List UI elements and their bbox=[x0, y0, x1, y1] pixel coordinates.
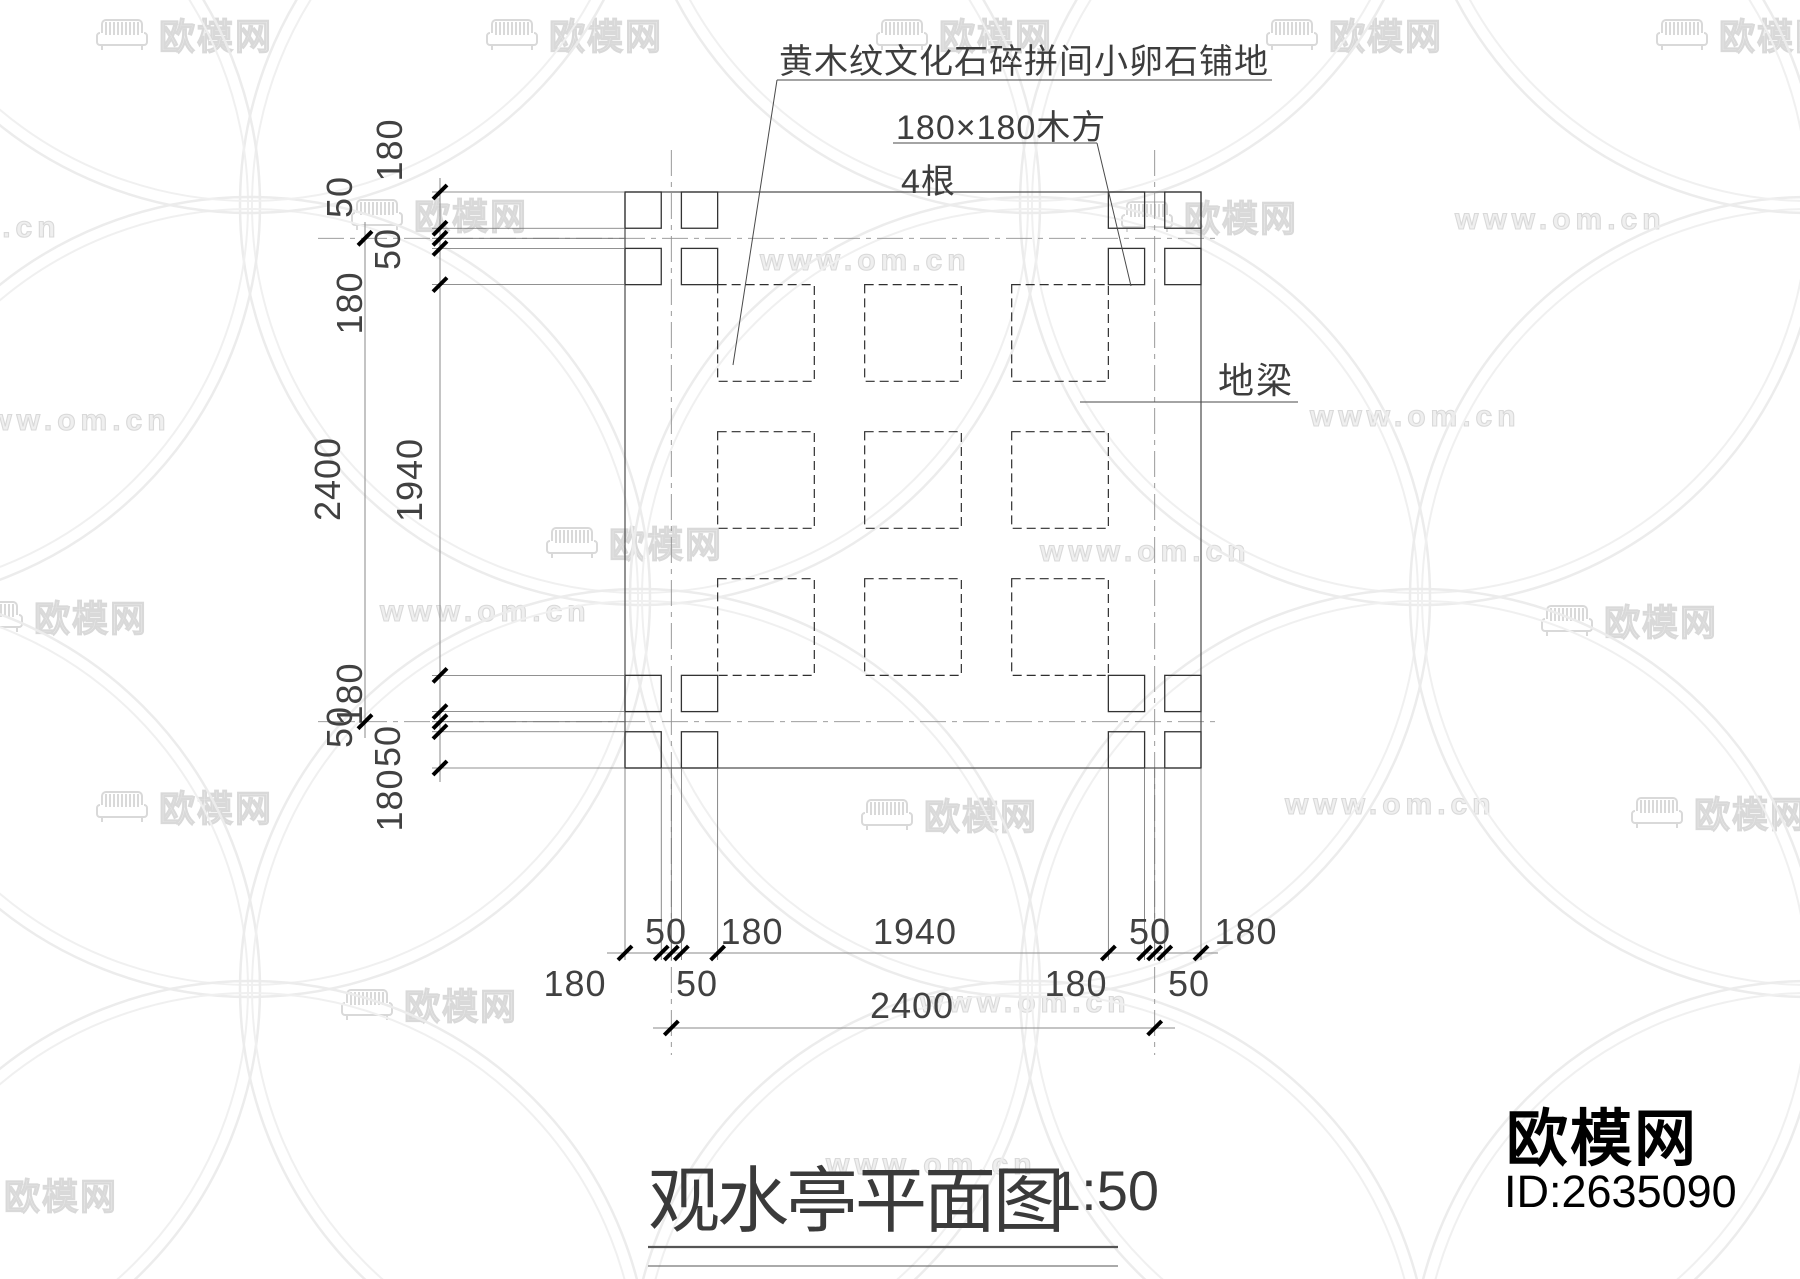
watermark-ring bbox=[1020, 0, 1800, 605]
sofa-icon bbox=[1655, 16, 1709, 52]
dimension-tick bbox=[1148, 946, 1162, 960]
wood-post bbox=[1165, 732, 1201, 768]
dimension-tick bbox=[1101, 946, 1115, 960]
sofa-icon bbox=[485, 16, 539, 52]
brand-watermark: 欧模网 bbox=[1630, 786, 1800, 838]
dim-label: 180 bbox=[1214, 911, 1277, 952]
brand-watermark-text: 欧模网 bbox=[414, 188, 528, 240]
cad-screenshot: 欧模网欧模网欧模网欧模网欧模网欧模网欧模网欧模网欧模网欧模网欧模网欧模网欧模网欧… bbox=[0, 0, 1800, 1279]
watermark-ring bbox=[0, 981, 650, 1279]
wood-post bbox=[681, 248, 717, 284]
paving-dashed-square bbox=[718, 432, 815, 529]
brand-watermark-text: 欧模网 bbox=[924, 788, 1038, 840]
dim-label: 1940 bbox=[873, 911, 957, 952]
wood-post bbox=[625, 732, 661, 768]
paving-dashed-square bbox=[1012, 285, 1109, 382]
brand-watermark-text: 欧模网 bbox=[1719, 8, 1800, 60]
dim-label: 50 bbox=[319, 706, 360, 748]
brand-watermark: 欧模网 bbox=[1655, 8, 1800, 60]
paving-dashed-square bbox=[865, 285, 962, 382]
wood-post bbox=[681, 192, 717, 228]
sofa-icon bbox=[1265, 16, 1319, 52]
wood-post bbox=[681, 732, 717, 768]
sofa-icon bbox=[95, 16, 149, 52]
paving-note-leader bbox=[733, 80, 777, 365]
url-watermark: www.om.cn bbox=[380, 595, 591, 629]
brand-watermark: 欧模网 bbox=[545, 516, 723, 568]
dim-label: 50 bbox=[1129, 911, 1171, 952]
brand-watermark-text: 欧模网 bbox=[1329, 8, 1443, 60]
dimension-tick bbox=[654, 946, 668, 960]
sofa-icon bbox=[95, 788, 149, 824]
dimension-tick bbox=[433, 668, 447, 682]
sofa-icon bbox=[860, 796, 914, 832]
brand-watermark: 欧模网 bbox=[860, 788, 1038, 840]
dimension-tick bbox=[1148, 1021, 1162, 1035]
wood-post-spec-text: 180×180木方 bbox=[896, 100, 1106, 149]
paving-dashed-square bbox=[865, 432, 962, 529]
wood-post bbox=[625, 248, 661, 284]
brand-watermark-text: 欧模网 bbox=[159, 8, 273, 60]
brand-watermark-text: 欧模网 bbox=[1184, 190, 1298, 242]
dim-label: 180 bbox=[369, 118, 410, 181]
ground-beam-outline bbox=[625, 192, 1201, 768]
dimension-tick bbox=[1158, 946, 1172, 960]
wood-post bbox=[681, 675, 717, 711]
wood-post bbox=[625, 675, 661, 711]
watermark-ring bbox=[0, 0, 248, 593]
dimension-tick bbox=[433, 725, 447, 739]
dim-label: 180 bbox=[543, 963, 606, 1004]
brand-watermark-text: 欧模网 bbox=[34, 590, 148, 642]
dim-label: 180 bbox=[720, 911, 783, 952]
url-watermark: www.om.cn bbox=[760, 244, 971, 278]
wood-post bbox=[1108, 675, 1144, 711]
brand-watermark: 欧模网 bbox=[0, 590, 148, 642]
brand-watermark-text: 欧模网 bbox=[549, 8, 663, 60]
pavilion-plan bbox=[625, 192, 1201, 768]
drawing-scale: 1:50 bbox=[1050, 1158, 1159, 1223]
watermark-ring bbox=[252, 0, 1028, 593]
sofa-icon bbox=[1120, 198, 1174, 234]
brand-watermark: 欧模网 bbox=[1540, 594, 1718, 646]
dimension-tick bbox=[433, 705, 447, 719]
brand-watermark: 欧模网 bbox=[95, 8, 273, 60]
watermark-ring bbox=[630, 197, 1430, 997]
dimension-tick bbox=[674, 946, 688, 960]
paving-dashed-square bbox=[718, 285, 815, 382]
brand-watermark: 欧模网 bbox=[95, 780, 273, 832]
dim-label-overall: 2400 bbox=[307, 437, 348, 521]
site-brand-text: 欧模网 bbox=[1506, 1088, 1698, 1178]
url-watermark: www.om.cn bbox=[0, 211, 61, 245]
sofa-icon bbox=[545, 524, 599, 560]
paving-dashed-square bbox=[718, 579, 815, 676]
brand-watermark-text: 欧模网 bbox=[159, 780, 273, 832]
watermark-ring bbox=[0, 993, 638, 1279]
url-watermark: www.om.cn bbox=[1285, 788, 1496, 822]
watermark-ring bbox=[642, 209, 1418, 985]
brand-watermark: 欧模网 bbox=[485, 8, 663, 60]
brand-watermark-text: 欧模网 bbox=[1694, 786, 1800, 838]
wood-post bbox=[1108, 732, 1144, 768]
brand-watermark-text: 欧模网 bbox=[404, 978, 518, 1030]
url-watermark: www.om.cn bbox=[1040, 535, 1251, 569]
paving-dashed-square bbox=[1012, 432, 1109, 529]
url-watermark: www.om.cn bbox=[1455, 203, 1666, 237]
watermark-ring bbox=[1032, 0, 1800, 593]
url-watermark: www.om.cn bbox=[0, 404, 171, 438]
drawing-title: 观水亭平面图 bbox=[648, 1142, 1062, 1247]
wood-post bbox=[1165, 675, 1201, 711]
sofa-icon bbox=[340, 986, 394, 1022]
watermark-ring bbox=[240, 0, 1040, 605]
dim-label: 50 bbox=[645, 911, 687, 952]
sofa-icon bbox=[350, 196, 404, 232]
wood-post-count-text: 4根 bbox=[901, 154, 956, 203]
url-watermark: www.om.cn bbox=[920, 986, 1131, 1020]
dim-label: 1940 bbox=[389, 438, 430, 522]
brand-watermark-text: 欧模网 bbox=[1604, 594, 1718, 646]
brand-watermark: 欧模网 bbox=[1120, 190, 1298, 242]
site-id-text: ID:2635090 bbox=[1504, 1166, 1737, 1218]
brand-watermark: 欧模网 bbox=[350, 188, 528, 240]
watermark-ring bbox=[0, 0, 260, 605]
dim-label: 180 bbox=[329, 271, 370, 334]
brand-watermark-text: 欧模网 bbox=[4, 1168, 118, 1220]
brand-watermark: 欧模网 bbox=[0, 1168, 118, 1220]
dimension-tick bbox=[664, 1021, 678, 1035]
brand-watermark-text: 欧模网 bbox=[609, 516, 723, 568]
title-rules bbox=[648, 1247, 1118, 1266]
url-watermark: www.om.cn bbox=[1310, 400, 1521, 434]
sofa-icon bbox=[0, 598, 24, 634]
sofa-icon bbox=[1540, 602, 1594, 638]
brand-watermark: 欧模网 bbox=[340, 978, 518, 1030]
dimension-tick bbox=[711, 946, 725, 960]
paving-dashed-square bbox=[865, 579, 962, 676]
dim-label: 180 bbox=[369, 768, 410, 831]
dimension-tick bbox=[618, 946, 632, 960]
sofa-icon bbox=[1630, 794, 1684, 830]
dim-label: 180 bbox=[329, 662, 370, 725]
ground-beam-label: 地梁 bbox=[1218, 352, 1294, 404]
paving-dashed-square bbox=[1012, 579, 1109, 676]
dimension-tick bbox=[1138, 946, 1152, 960]
dimension-tick bbox=[433, 278, 447, 292]
dimension-tick bbox=[1194, 946, 1208, 960]
dimension-tick bbox=[433, 715, 447, 729]
dim-label: 50 bbox=[676, 963, 718, 1004]
dimension-tick bbox=[358, 715, 372, 729]
wood-post bbox=[1108, 248, 1144, 284]
dim-label: 50 bbox=[367, 725, 408, 767]
dimension-tick bbox=[433, 241, 447, 255]
dim-label: 50 bbox=[1168, 963, 1210, 1004]
brand-watermark: 欧模网 bbox=[1265, 8, 1443, 60]
dimension-tick bbox=[433, 761, 447, 775]
dimension-tick bbox=[664, 946, 678, 960]
wood-post bbox=[625, 192, 661, 228]
wood-post bbox=[1165, 248, 1201, 284]
paving-note-text: 黄木纹文化石碎拼间小卵石铺地 bbox=[779, 34, 1269, 83]
